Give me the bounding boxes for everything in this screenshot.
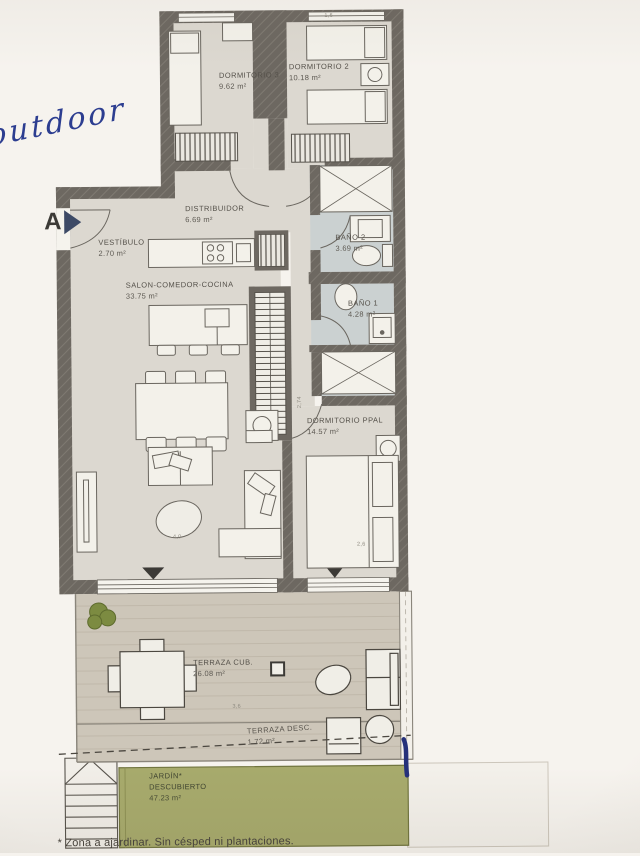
label-bano1: BAÑO 1 4.28 m² [348, 298, 378, 320]
dim-top-width: 1,6 [324, 13, 333, 19]
bedroom3-wardrobe [175, 133, 237, 162]
dim-dorm-width: 2,6 [357, 542, 366, 548]
room-name: VESTÍBULO [98, 238, 144, 247]
room-name: TERRAZA CUB. [193, 658, 253, 668]
label-terraza-desc: TERRAZA DESC. 1.72 m² [247, 723, 314, 749]
room-name: DORMITORIO 3 [219, 70, 279, 80]
room-name: JARDÍN* [149, 771, 182, 780]
garden-stairs [65, 758, 118, 848]
label-dormitorio2: DORMITORIO 2 10.18 m² [289, 62, 349, 84]
label-terraza-cub: TERRAZA CUB. 26.08 m² [193, 658, 253, 680]
section-arrow-icon [64, 210, 81, 234]
room-area: 9.62 m² [219, 81, 279, 92]
room-name: DISTRIBUIDOR [185, 204, 244, 214]
sun-lounger [366, 649, 401, 709]
room-area: 47.23 m² [149, 793, 206, 804]
room-area: 14.57 m² [307, 426, 383, 438]
label-dormitorio-ppal: DORMITORIO PPAL 14.57 m² [307, 415, 383, 437]
terrace-light-symbol [271, 662, 284, 675]
room-name: BAÑO 2 [335, 233, 365, 242]
room-area: 4.28 m² [348, 309, 378, 320]
label-vestibulo: VESTÍBULO 2.70 m² [98, 238, 144, 260]
room-area: 6.69 m² [185, 215, 244, 226]
ink-mark [404, 739, 407, 775]
neighbor-parcel-outline [407, 762, 549, 847]
room-name: DORMITORIO PPAL [307, 415, 383, 425]
label-distribuidor: DISTRIBUIDOR 6.69 m² [185, 204, 244, 226]
sofa [148, 447, 212, 486]
room-name: SALON-COMEDOR-COCINA [126, 280, 234, 290]
sideboard [76, 472, 97, 552]
terrace-cabinet [327, 718, 361, 754]
room-area: 10.18 m² [289, 73, 349, 84]
label-bano2: BAÑO 2 3.69 m² [335, 233, 365, 255]
terrace-railing [399, 591, 412, 759]
label-jardin: JARDÍN* DESCUBIERTO 47.23 m² [149, 771, 206, 804]
terrace-table-set [108, 639, 197, 720]
room-name: BAÑO 1 [348, 298, 378, 307]
dining-table [136, 371, 229, 452]
dim-salon-height: 2,74 [297, 396, 303, 408]
room-area: 33.75 m² [126, 291, 234, 303]
kitchen-island [149, 305, 247, 356]
dim-salon-width: 4,0 [173, 534, 182, 540]
room-name-2: DESCUBIERTO [149, 782, 206, 793]
kitchen-tall-unit [254, 230, 288, 270]
section-marker: A [44, 208, 82, 236]
room-area: 26.08 m² [193, 668, 253, 679]
label-dormitorio3: DORMITORIO 3 9.62 m² [219, 70, 279, 92]
kitchen-counter [148, 239, 254, 268]
terrace-round-table [366, 715, 394, 743]
footnote: * Zona a ajardinar. Sin césped ni planta… [58, 835, 294, 849]
dim-terraza-width: 3,6 [232, 704, 241, 710]
room-area: 2.70 m² [98, 248, 144, 259]
bedroom2-wardrobe [291, 134, 349, 163]
section-letter: A [44, 208, 62, 236]
label-salon: SALON-COMEDOR-COCINA 33.75 m² [126, 280, 234, 303]
floor-plan-photo: DORMITORIO 3 9.62 m² DORMITORIO 2 10.18 … [0, 0, 640, 856]
room-area: 3.69 m² [335, 243, 365, 254]
room-name: DORMITORIO 2 [289, 62, 349, 72]
